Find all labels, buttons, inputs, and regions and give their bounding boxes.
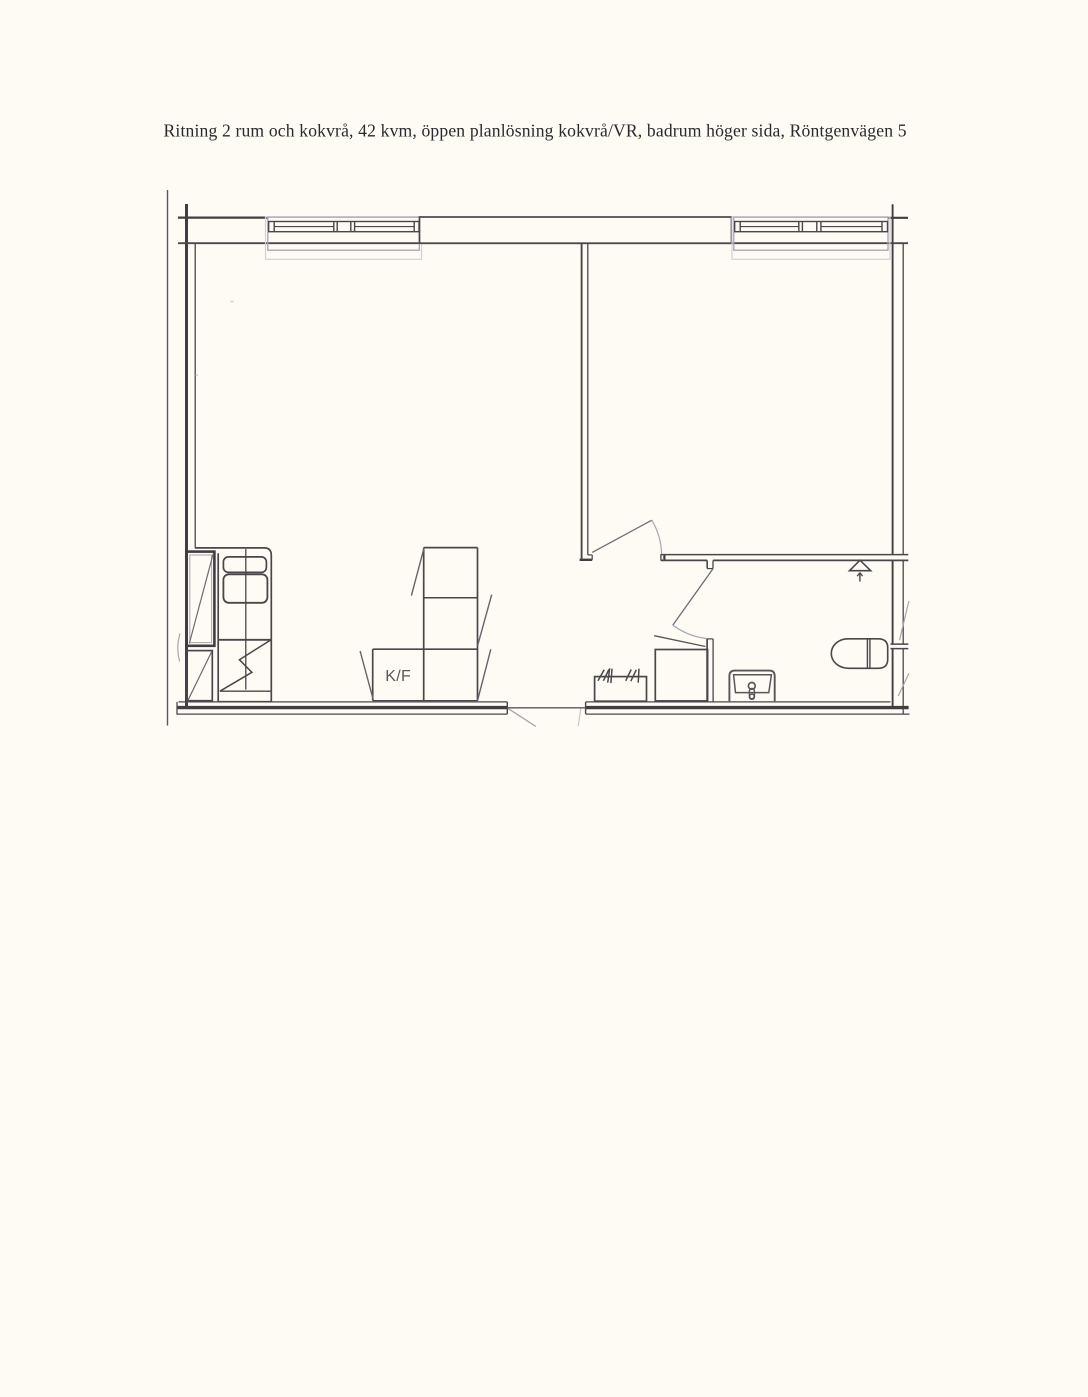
svg-text:Ritning 2 rum och kokvrå, 42 k: Ritning 2 rum och kokvrå, 42 kvm, öppen … (164, 121, 907, 141)
svg-text:K/F: K/F (385, 668, 411, 685)
